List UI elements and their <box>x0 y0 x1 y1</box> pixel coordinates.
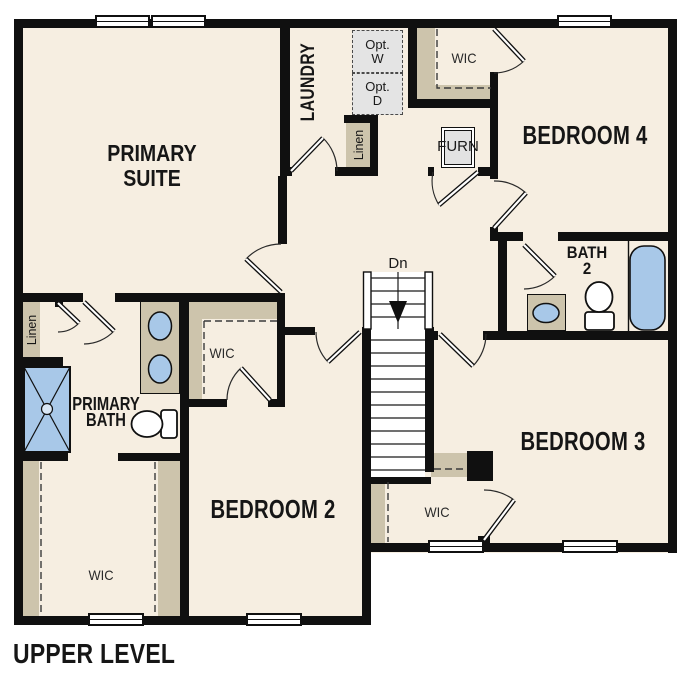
floor-plan: Opt. W Opt. D <box>0 0 687 687</box>
shelf-wic-bl-right <box>158 461 180 616</box>
window <box>562 540 618 553</box>
wall-segment <box>55 302 63 307</box>
wall-segment <box>280 19 290 176</box>
opt-washer-label-line1: Opt. <box>365 38 390 52</box>
wall-segment <box>498 232 507 340</box>
shelf-wic-bm-top <box>431 453 467 477</box>
wall-segment <box>490 72 498 179</box>
opt-washer-label-line2: W <box>371 52 383 66</box>
optional-washer-box: Opt. W <box>352 30 403 73</box>
primary-vanity-counter <box>140 301 180 394</box>
wall-segment <box>362 543 371 625</box>
wall-segment <box>14 19 23 625</box>
wall-segment <box>668 19 677 553</box>
wall-segment <box>277 335 285 407</box>
bath-2-line2: 2 <box>561 261 614 277</box>
wall-segment <box>370 115 378 176</box>
window <box>95 15 150 28</box>
shelf-wic-bm-left <box>371 481 385 543</box>
wall-segment <box>425 327 434 472</box>
closet-label-linen-left: Linen <box>24 302 38 359</box>
floor-area-lower-left <box>14 550 371 625</box>
floor-area-main <box>14 19 677 553</box>
room-label-bath-2: BATH 2 <box>561 245 614 276</box>
window <box>557 15 612 28</box>
window <box>151 15 206 28</box>
room-label-primary-bath: PRIMARY BATH <box>72 396 141 428</box>
wall-segment <box>115 293 285 302</box>
wall-segment <box>408 19 417 108</box>
wall-segment <box>278 176 287 244</box>
wall-segment <box>483 331 677 340</box>
bath2-sink-counter <box>527 294 566 331</box>
wall-segment <box>180 293 189 625</box>
closet-label-linen-top: Linen <box>351 117 365 174</box>
shelf-wic-mid-top <box>189 302 277 319</box>
room-label-bedroom-2: BEDROOM 2 <box>203 494 343 525</box>
wall-segment <box>277 327 315 335</box>
wall-segment <box>467 451 493 481</box>
wall-segment <box>14 357 63 366</box>
optional-dryer-box: Opt. D <box>352 73 403 115</box>
closet-label-wic-bottom-mid: WIC <box>409 504 464 520</box>
window <box>246 613 302 626</box>
primary-bath-line2: BATH <box>72 412 141 428</box>
wall-segment <box>362 327 371 543</box>
closet-label-wic-bottom-left: WIC <box>73 567 128 583</box>
wall-segment <box>408 99 498 108</box>
opt-dryer-label-line2: D <box>373 94 382 108</box>
wall-segment <box>362 543 677 552</box>
closet-label-wic-mid: WIC <box>194 345 249 361</box>
wall-segment <box>189 399 227 407</box>
opt-dryer-label-line1: Opt. <box>365 80 390 94</box>
room-label-bedroom-3: BEDROOM 3 <box>513 426 653 457</box>
wall-segment <box>14 453 68 461</box>
page-title: UPPER LEVEL <box>13 638 175 670</box>
stairs-dn-label: Dn <box>378 255 418 272</box>
wall-segment <box>280 167 292 176</box>
wall-segment <box>268 399 285 407</box>
shelf-wic-bl-left <box>22 461 39 616</box>
wall-segment <box>118 453 189 461</box>
room-label-primary-suite: PRIMARY SUITE <box>76 141 229 191</box>
wall-segment <box>558 232 677 241</box>
closet-label-wic-top: WIC <box>436 50 491 66</box>
window <box>88 613 144 626</box>
room-label-laundry: LAUNDRY <box>298 29 318 136</box>
wall-segment <box>14 616 371 625</box>
wall-segment <box>425 331 438 340</box>
wall-segment <box>365 477 431 484</box>
room-label-bedroom-4: BEDROOM 4 <box>515 120 655 151</box>
wall-segment <box>428 167 434 176</box>
furnace-label: FURN <box>430 138 486 155</box>
window <box>428 540 484 553</box>
